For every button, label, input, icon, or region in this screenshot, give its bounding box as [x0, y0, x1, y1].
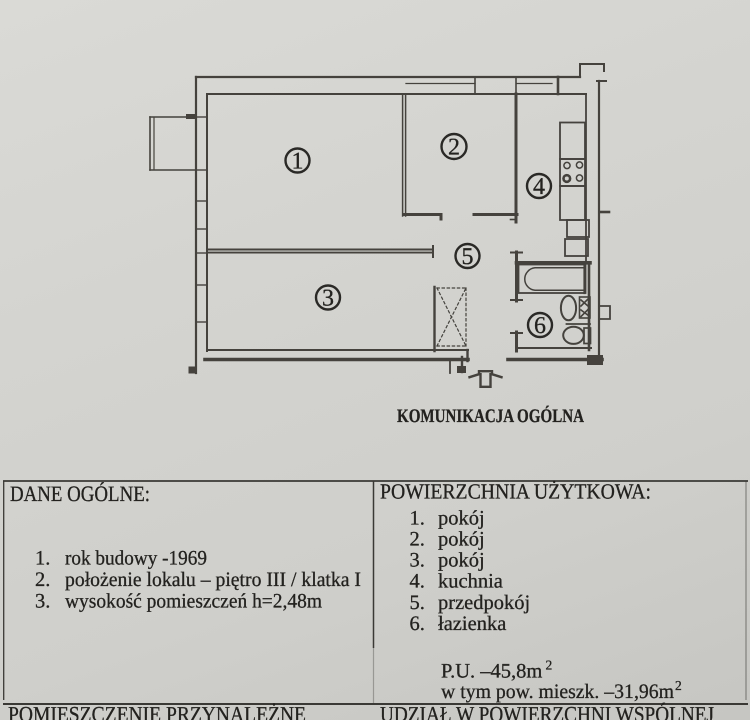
svg-text:5.: 5. [410, 592, 425, 614]
svg-text:DANE OGÓLNE:: DANE OGÓLNE: [10, 481, 150, 506]
svg-text:w tym pow. mieszk. –31,96m: w tym pow. mieszk. –31,96m [441, 681, 674, 703]
svg-text:kuchnia: kuchnia [438, 571, 503, 593]
svg-text:KOMUNIKACJA OGÓLNA: KOMUNIKACJA OGÓLNA [397, 405, 584, 427]
svg-text:wysokość pomieszczeń h=2,48m: wysokość pomieszczeń h=2,48m [65, 591, 322, 613]
svg-text:3.: 3. [35, 591, 50, 613]
svg-text:przedpokój: przedpokój [438, 592, 530, 614]
svg-text:1.: 1. [410, 508, 425, 530]
svg-text:6: 6 [534, 313, 546, 339]
svg-text:5: 5 [462, 244, 474, 270]
svg-text:rok budowy -1969: rok budowy -1969 [65, 548, 207, 570]
svg-text:P.U. –45,8m: P.U. –45,8m [441, 661, 542, 683]
svg-text:3: 3 [322, 286, 334, 312]
svg-text:pokój: pokój [438, 529, 485, 551]
svg-text:2.: 2. [410, 529, 425, 551]
svg-text:POMIESZCZENIE PRZYNALEŻNE: POMIESZCZENIE PRZYNALEŻNE [8, 702, 306, 720]
svg-text:1: 1 [292, 149, 304, 175]
svg-text:POWIERZCHNIA UŻYTKOWA:: POWIERZCHNIA UŻYTKOWA: [380, 480, 651, 504]
svg-text:pokój: pokój [438, 550, 485, 572]
svg-text:pokój: pokój [438, 508, 485, 530]
svg-text:6.: 6. [410, 613, 425, 635]
svg-text:2.: 2. [35, 569, 50, 591]
svg-text:1.: 1. [35, 548, 50, 570]
svg-text:2: 2 [675, 678, 682, 693]
svg-text:4.: 4. [410, 571, 425, 593]
svg-text:łazienka: łazienka [438, 613, 506, 635]
svg-text:4: 4 [533, 174, 545, 200]
svg-text:3.: 3. [410, 550, 425, 572]
svg-text:UDZIAŁ W POWIERZCHNI WSPÓLNEJ: UDZIAŁ W POWIERZCHNI WSPÓLNEJ [380, 702, 714, 720]
svg-text:położenie lokalu – piętro III: położenie lokalu – piętro III / klatka I [65, 569, 361, 591]
svg-text:2: 2 [448, 135, 460, 161]
svg-text:2: 2 [546, 658, 553, 673]
